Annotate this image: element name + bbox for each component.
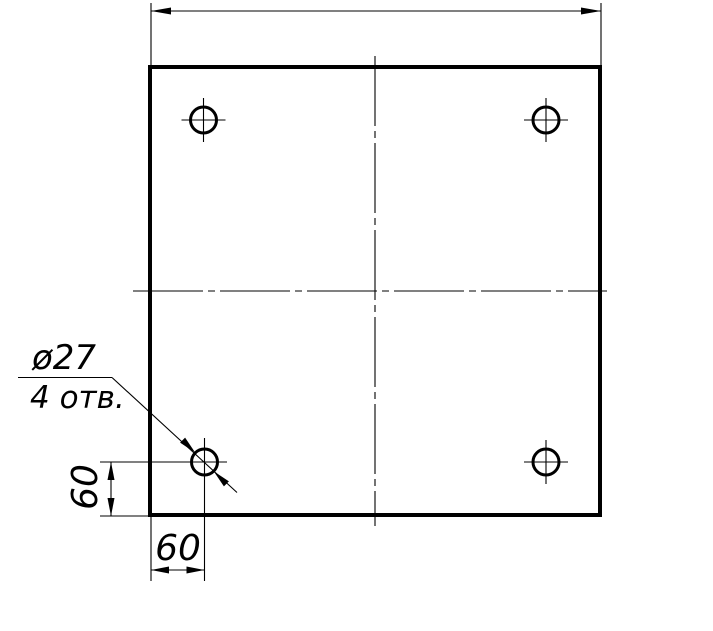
vertical-offset-value: 60 <box>65 464 106 510</box>
hole-top-left <box>182 98 226 142</box>
arrowhead-lower-right <box>214 471 229 486</box>
hole-bottom-right <box>524 440 568 484</box>
hole-diameter-label: ø27 <box>31 338 96 378</box>
horizontal-offset-dimension: 60 <box>151 517 205 581</box>
arrowhead-upper-left <box>180 438 195 453</box>
top-width-dimension <box>151 3 601 65</box>
technical-drawing: ø27 4 отв. 60 60 <box>0 0 713 631</box>
hole-count-label: 4 отв. <box>30 380 125 416</box>
hole-top-right <box>524 98 568 142</box>
arrowhead-left <box>151 8 171 15</box>
vertical-offset-dimension: 60 <box>65 462 151 516</box>
arrowhead-right <box>581 8 601 15</box>
arrowhead-down <box>108 498 115 516</box>
arrowhead-up <box>108 462 115 480</box>
horizontal-offset-value: 60 <box>155 528 201 569</box>
